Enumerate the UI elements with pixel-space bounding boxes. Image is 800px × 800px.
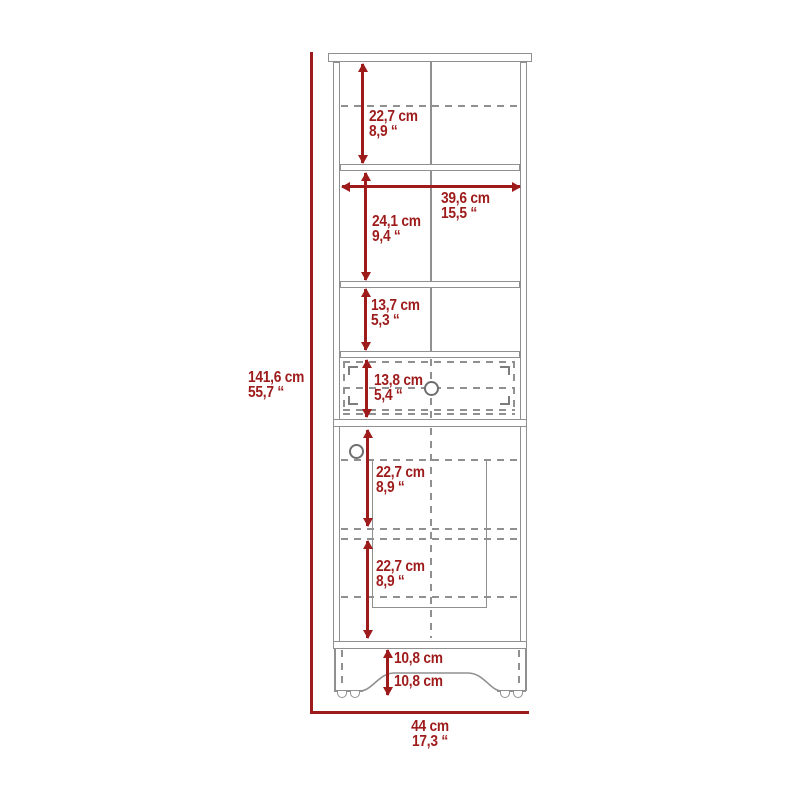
dim-label-drawer: 13,8 cm 5,4 “ <box>374 373 423 403</box>
third-section-in: 5,3 “ <box>371 313 420 328</box>
drawer-front-right-line <box>513 361 515 411</box>
overall-width-extent-line <box>310 711 529 714</box>
dim-label-base-back: 10,8 cm <box>394 674 443 689</box>
shelf-board-1 <box>340 164 520 171</box>
dim-label-second-section: 24,1 cm 9,4 “ <box>372 214 421 244</box>
overall-height-in: 55,7 “ <box>248 385 304 400</box>
door-lower-cm: 22,7 cm <box>376 559 425 574</box>
door-upper-cm: 22,7 cm <box>376 465 425 480</box>
top-section-in: 8,9 “ <box>369 124 418 139</box>
door-lower-in: 8,9 “ <box>376 574 425 589</box>
dim-label-top-section: 22,7 cm 8,9 “ <box>369 109 418 139</box>
center-joint-line-lower <box>430 288 432 352</box>
shelf-board-2 <box>340 281 520 288</box>
dim-arrow-drawer <box>365 360 368 417</box>
overall-height-label: 141,6 cm 55,7 “ <box>248 370 304 400</box>
overall-width-in: 17,3 “ <box>344 734 516 749</box>
interior-width-in: 15,5 “ <box>441 206 490 221</box>
overall-width-label: 44 cm 17,3 “ <box>344 719 516 749</box>
dim-arrow-top-section <box>361 64 364 163</box>
base-back-cm: 10,8 cm <box>394 674 443 689</box>
dim-label-base-front: 10,8 cm <box>394 651 443 666</box>
hidden-shelf-line-top-section <box>341 105 520 107</box>
cabinet-left-side-panel <box>333 62 340 642</box>
dim-arrow-door-lower <box>366 541 369 638</box>
dim-arrow-door-upper <box>366 430 369 526</box>
drawer-front-left-line <box>343 361 345 411</box>
drawer-corner-mark-top-right <box>500 366 510 375</box>
overall-width-cm: 44 cm <box>344 719 516 734</box>
top-section-cm: 22,7 cm <box>369 109 418 124</box>
drawer-corner-mark-bottom-left <box>348 396 358 405</box>
door-upper-in: 8,9 “ <box>376 480 425 495</box>
dim-label-door-upper: 22,7 cm 8,9 “ <box>376 465 425 495</box>
second-section-cm: 24,1 cm <box>372 214 421 229</box>
hidden-shelf-line-lower-1 <box>341 528 519 530</box>
third-section-cm: 13,7 cm <box>371 298 420 313</box>
overall-height-cm: 141,6 cm <box>248 370 304 385</box>
second-section-in: 9,4 “ <box>372 229 421 244</box>
interior-width-cm: 39,6 cm <box>441 191 490 206</box>
drawer-in: 5,4 “ <box>374 388 423 403</box>
dim-arrow-second-section <box>364 173 367 280</box>
drawer-corner-mark-top-left <box>348 366 358 375</box>
dimension-drawing-canvas: 141,6 cm 55,7 “ 44 cm 17,3 “ <box>0 0 800 800</box>
drawer-corner-mark-bottom-right <box>500 396 510 405</box>
dim-arrow-base <box>386 650 389 695</box>
shelf-board-3 <box>340 351 520 358</box>
dim-arrow-third-section <box>364 289 367 350</box>
door-knob-icon <box>349 444 364 459</box>
dim-label-interior-width: 39,6 cm 15,5 “ <box>441 191 490 221</box>
dim-label-third-section: 13,7 cm 5,3 “ <box>371 298 420 328</box>
center-joint-line-top <box>430 62 432 165</box>
drawer-cm: 13,8 cm <box>374 373 423 388</box>
dim-arrow-interior-width <box>342 185 520 188</box>
cabinet-right-side-panel <box>520 62 527 642</box>
cabinet-top-board <box>328 53 532 62</box>
dim-label-door-lower: 22,7 cm 8,9 “ <box>376 559 425 589</box>
overall-height-extent-line <box>310 52 313 713</box>
base-front-cm: 10,8 cm <box>394 651 443 666</box>
drawer-bottom-board <box>333 419 527 427</box>
lower-center-hidden-line <box>430 428 432 638</box>
drawer-knob-icon <box>424 381 439 396</box>
